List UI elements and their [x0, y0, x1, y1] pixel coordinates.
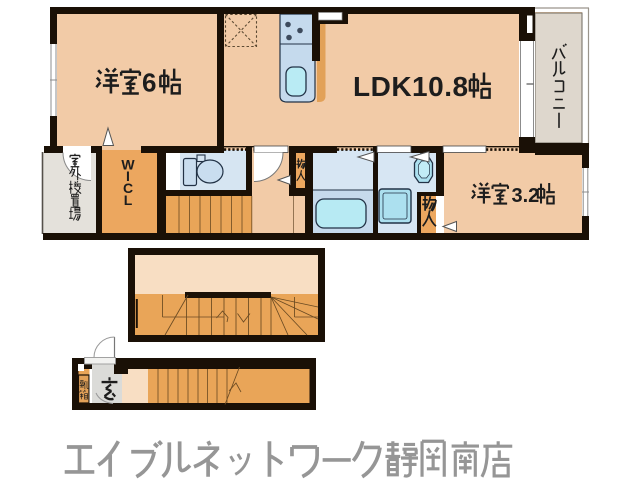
svg-text:L: L — [124, 192, 133, 208]
svg-text:LDK10.8: LDK10.8 — [353, 71, 469, 102]
svg-text:6: 6 — [142, 68, 156, 98]
svg-text:3.2: 3.2 — [512, 185, 540, 207]
